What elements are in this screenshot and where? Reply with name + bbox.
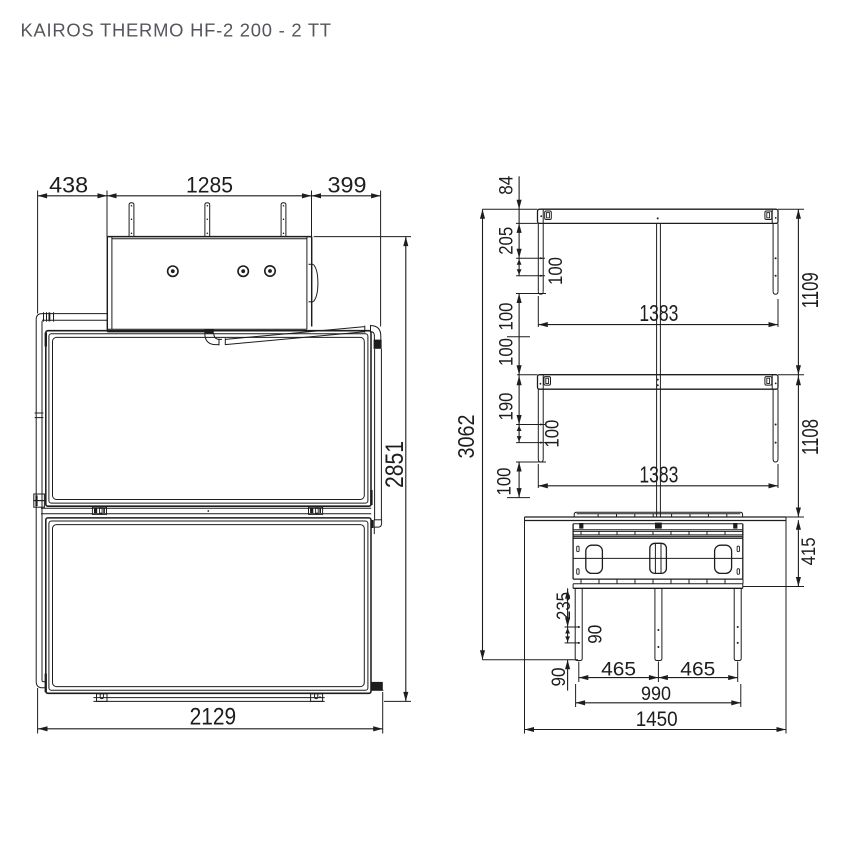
svg-text:1450: 1450 [636, 707, 678, 731]
svg-text:100: 100 [493, 467, 515, 495]
svg-text:1383: 1383 [639, 300, 678, 326]
svg-text:1109: 1109 [797, 272, 823, 308]
svg-text:2851: 2851 [381, 441, 409, 488]
svg-text:1108: 1108 [797, 419, 823, 455]
svg-text:990: 990 [641, 683, 671, 705]
svg-text:465: 465 [680, 659, 715, 681]
svg-text:399: 399 [328, 173, 367, 198]
svg-text:100: 100 [495, 302, 517, 330]
svg-text:235: 235 [553, 592, 575, 620]
svg-text:465: 465 [601, 659, 636, 681]
svg-text:KAIROS THERMO HF-2 200 - 2 TT: KAIROS THERMO HF-2 200 - 2 TT [21, 20, 332, 41]
svg-text:100: 100 [545, 257, 567, 285]
svg-text:90: 90 [585, 625, 607, 644]
svg-text:2129: 2129 [190, 704, 237, 731]
svg-text:100: 100 [495, 338, 517, 366]
svg-text:1383: 1383 [639, 461, 678, 487]
svg-text:415: 415 [798, 537, 820, 565]
svg-text:3062: 3062 [453, 415, 479, 459]
svg-text:90: 90 [548, 667, 570, 686]
svg-text:1285: 1285 [186, 173, 233, 198]
svg-text:205: 205 [495, 227, 517, 255]
svg-text:100: 100 [542, 419, 564, 447]
svg-text:438: 438 [49, 173, 88, 198]
svg-text:190: 190 [495, 392, 517, 420]
svg-text:84: 84 [495, 176, 517, 195]
